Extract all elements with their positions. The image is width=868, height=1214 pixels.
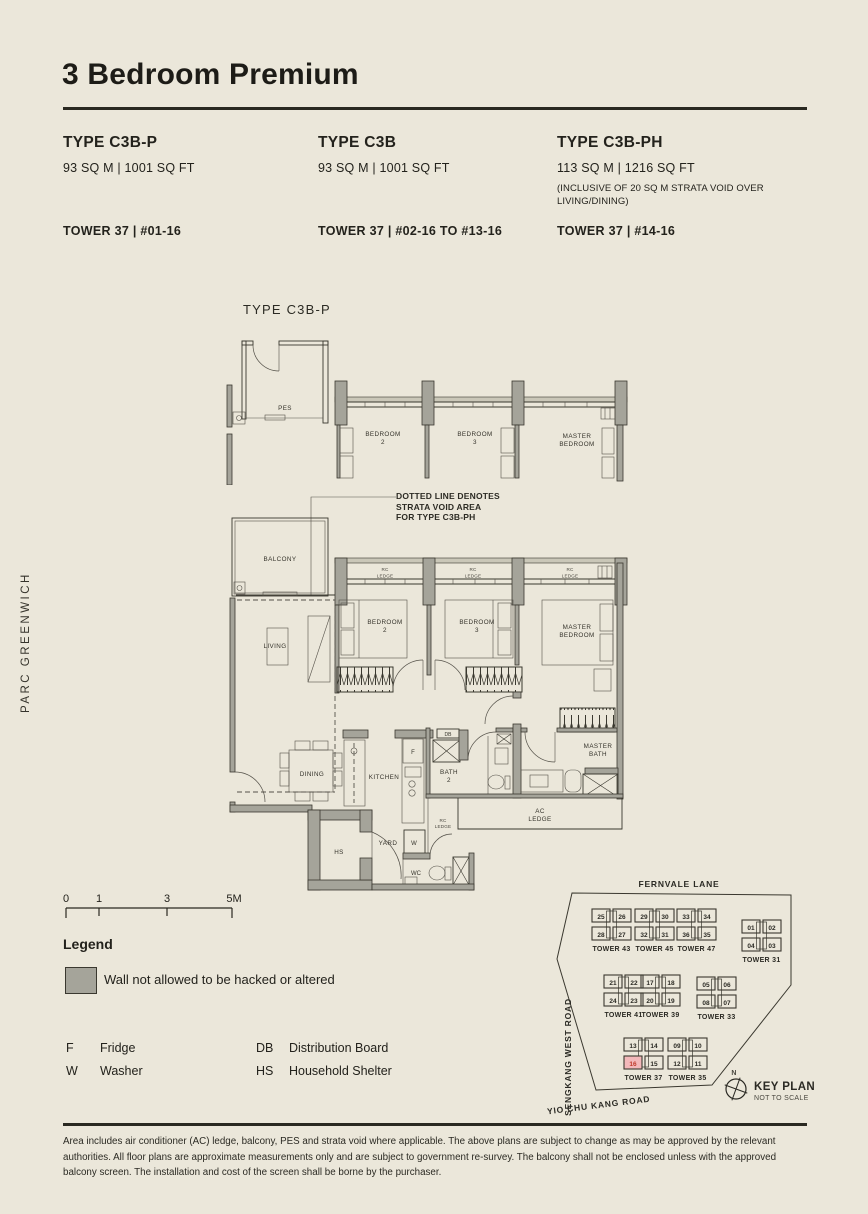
keyplan-unit-number: 24 <box>609 998 617 1005</box>
keyplan-unit-number: 22 <box>630 980 638 987</box>
rc-ledge-label-2: RC <box>469 567 477 572</box>
keyplan-unit-number: 03 <box>768 943 776 950</box>
master-bedroom-label: MASTER <box>563 624 592 631</box>
master-bath: MASTER BATH <box>521 732 618 797</box>
tower-cluster: 01020403TOWER 31 <box>742 920 781 964</box>
road-fernvale-lane: FERNVALE LANE <box>638 879 719 889</box>
living-dining: LIVING DINING <box>230 598 342 812</box>
living-label: LIVING <box>263 643 286 650</box>
tower-cluster: 21222423TOWER 41 <box>604 975 643 1019</box>
tower-cluster: 05060807TOWER 33 <box>697 977 736 1021</box>
keyplan-unit-number: 19 <box>667 998 675 1005</box>
keyplan-unit-number: 13 <box>629 1043 637 1050</box>
tower-cluster: 33343635TOWER 47 <box>677 909 716 953</box>
legend-heading: Legend <box>63 936 113 952</box>
rc-ledge-small-label: RC <box>439 818 447 823</box>
scale-1: 1 <box>96 893 102 905</box>
household-shelter: HS <box>308 810 401 890</box>
wall-legend-text: Wall not allowed to be hacked or altered <box>104 972 335 987</box>
tower-range-2: TOWER 37 | #02-16 TO #13-16 <box>318 224 502 238</box>
rc-ledge-label-1: RC <box>381 567 389 572</box>
type-area: 93 SQ M | 1001 SQ FT <box>318 161 553 175</box>
strip-bedrooms: BEDROOM 2 BEDROOM 3 MASTER BEDROOM <box>337 408 623 481</box>
keyplan-unit-number: 23 <box>630 998 638 1005</box>
tower-cluster-label: TOWER 31 <box>742 957 780 964</box>
ac-ledge-label2: LEDGE <box>528 816 551 823</box>
rc-ledge-label-3: RC <box>566 567 574 572</box>
tower-cluster-label: TOWER 35 <box>668 1075 706 1082</box>
floorplan-main: BALCONY RC LEDGE RC LEDGE RC <box>225 488 655 903</box>
rc-ledge-label-2b: LEDGE <box>465 574 482 579</box>
tower-cluster: 09101211TOWER 35 <box>668 1038 707 1082</box>
bedroom3-num: 3 <box>473 439 477 446</box>
abbr-hs: HS <box>256 1064 273 1078</box>
keyplan-unit-number: 34 <box>703 914 711 921</box>
keyplan-unit-number: 25 <box>597 914 605 921</box>
bedroom3-label: BEDROOM <box>457 431 492 438</box>
yard-wc: YARD W WC <box>372 830 474 890</box>
wall-legend-swatch <box>65 967 97 994</box>
keyplan-unit-number: 26 <box>618 914 626 921</box>
kitchen: F KITCHEN <box>343 730 433 823</box>
pes-label: PES <box>278 405 292 412</box>
bedroom-2: BEDROOM 2 <box>335 600 423 693</box>
yard-label: YARD <box>379 840 398 847</box>
keyplan-unit-number: 10 <box>694 1043 702 1050</box>
abbr-hs-label: Household Shelter <box>289 1064 392 1078</box>
keyplan-unit-number: 02 <box>768 925 776 932</box>
pes-room: PES <box>242 341 328 423</box>
tower-cluster: 17182019TOWER 39 <box>641 975 680 1019</box>
rc-ledge-label-1b: LEDGE <box>377 574 394 579</box>
keyplan-unit-number: 18 <box>667 980 675 987</box>
balcony-label: BALCONY <box>264 556 297 563</box>
tower-range-3: TOWER 37 | #14-16 <box>557 224 675 238</box>
hs-label: HS <box>334 849 344 856</box>
keyplan-unit-number: 36 <box>682 932 690 939</box>
tower-cluster: 29303231TOWER 45 <box>635 909 674 953</box>
type-name: TYPE C3B-P <box>63 134 298 152</box>
keyplan-unit-number: 06 <box>723 982 731 989</box>
keyplan-unit-number: 05 <box>702 982 710 989</box>
keyplan-unit-number: 31 <box>661 932 669 939</box>
abbr-f: F <box>66 1041 74 1055</box>
kitchen-label: KITCHEN <box>369 774 399 781</box>
page-title: 3 Bedroom Premium <box>62 58 359 92</box>
bedroom3-num: 3 <box>475 627 479 634</box>
bedroom2-label: BEDROOM <box>365 431 400 438</box>
master-bedroom-label: MASTER <box>563 433 592 440</box>
north-compass-icon: N <box>721 1070 752 1104</box>
keyplan-unit-number: 01 <box>747 925 755 932</box>
type-area: 93 SQ M | 1001 SQ FT <box>63 161 298 175</box>
fridge-label: F <box>411 750 415 756</box>
keyplan-unit-number: 07 <box>723 1000 731 1007</box>
bath2-num: 2 <box>447 777 451 784</box>
disclaimer-text: Area includes air conditioner (AC) ledge… <box>63 1134 809 1181</box>
key-plan-subtitle: NOT TO SCALE <box>754 1095 809 1102</box>
keyplan-unit-number: 12 <box>673 1061 681 1068</box>
plan-variant-label: TYPE C3B-P <box>243 302 331 317</box>
type-name: TYPE C3B-PH <box>557 134 792 152</box>
keyplan-unit-number: 09 <box>673 1043 681 1050</box>
unit-type-col-1: TYPE C3B-P 93 SQ M | 1001 SQ FT <box>63 134 298 175</box>
abbr-w-label: Washer <box>100 1064 143 1078</box>
keyplan-unit-number: 21 <box>609 980 617 987</box>
brochure-page: 3 Bedroom Premium TYPE C3B-P 93 SQ M | 1… <box>0 0 868 1214</box>
keyplan-unit-number: 27 <box>618 932 626 939</box>
master-bedroom-label2: BEDROOM <box>559 441 594 448</box>
bedroom-3: BEDROOM 3 <box>427 600 522 692</box>
dining-label: DINING <box>300 771 324 778</box>
master-bath-label2: BATH <box>589 751 607 758</box>
strata-void-dashed-line <box>237 600 335 792</box>
bath-2: DB BATH 2 <box>426 728 513 798</box>
floorplan-strip-c3bp: PES <box>225 328 655 485</box>
rc-ledge-label-3b: LEDGE <box>562 574 579 579</box>
project-name-vertical: PARC GREENWICH <box>20 572 32 713</box>
master-bedroom: MASTER BEDROOM <box>515 566 615 732</box>
keyplan-unit-number: 28 <box>597 932 605 939</box>
keyplan-unit-number: 17 <box>646 980 654 987</box>
footer-divider <box>63 1123 807 1126</box>
keyplan-unit-number: 14 <box>650 1043 658 1050</box>
tower-cluster-label: TOWER 45 <box>635 946 673 953</box>
tower-cluster-label: TOWER 39 <box>641 1012 679 1019</box>
scale-0: 0 <box>63 893 69 905</box>
type-area: 113 SQ M | 1216 SQ FT <box>557 161 792 175</box>
tower-cluster: 25262827TOWER 43 <box>592 909 631 953</box>
keyplan-unit-number: 08 <box>702 1000 710 1007</box>
type-note: (INCLUSIVE OF 20 SQ M STRATA VOID OVER L… <box>557 182 769 208</box>
master-bath-label: MASTER <box>584 743 613 750</box>
tower-cluster: 13141615TOWER 37 <box>624 1038 663 1082</box>
key-plan: FERNVALE LANE SENGKANG WEST ROAD YIO CHU… <box>544 872 866 1120</box>
keyplan-unit-number: 11 <box>695 1061 702 1068</box>
unit-type-col-2: TYPE C3B 93 SQ M | 1001 SQ FT <box>318 134 553 175</box>
tower-cluster-label: TOWER 33 <box>697 1014 735 1021</box>
tower-cluster-label: TOWER 47 <box>677 946 715 953</box>
rc-ledge-small-label2: LEDGE <box>435 824 452 829</box>
bedroom2-num: 2 <box>381 439 385 446</box>
keyplan-unit-number: 32 <box>640 932 648 939</box>
strip-window-band <box>335 381 627 425</box>
bath2-label: BATH <box>440 769 458 776</box>
road-sengkang-west: SENGKANG WEST ROAD <box>563 998 573 1116</box>
bedroom2-label: BEDROOM <box>367 619 402 626</box>
scale-3: 3 <box>164 893 170 905</box>
tower-cluster-label: TOWER 37 <box>624 1075 662 1082</box>
type-name: TYPE C3B <box>318 134 553 152</box>
keyplan-unit-number: 29 <box>640 914 648 921</box>
keyplan-unit-number: 30 <box>661 914 669 921</box>
scale-5m: 5M <box>226 893 241 905</box>
bedroom3-label: BEDROOM <box>459 619 494 626</box>
balcony: BALCONY <box>232 518 335 596</box>
keyplan-unit-number: 35 <box>703 932 711 939</box>
ac-ledge: AC LEDGE RC LEDGE <box>426 794 623 854</box>
keyplan-unit-number: 20 <box>646 998 654 1005</box>
title-divider <box>63 107 807 110</box>
north-label: N <box>731 1070 736 1077</box>
db-label: DB <box>445 732 453 738</box>
unit-type-col-3: TYPE C3B-PH 113 SQ M | 1216 SQ FT (INCLU… <box>557 134 792 208</box>
key-plan-title: KEY PLAN <box>754 1081 815 1093</box>
wc-label: WC <box>411 871 422 877</box>
scale-bar: 0 1 3 5M <box>58 886 268 924</box>
tower-range-1: TOWER 37 | #01-16 <box>63 224 181 238</box>
master-bedroom-label2: BEDROOM <box>559 632 594 639</box>
keyplan-unit-number: 16 <box>629 1061 637 1068</box>
tower-cluster-label: TOWER 43 <box>592 946 630 953</box>
washer-label: W <box>411 841 417 847</box>
void-note-leader <box>311 497 396 596</box>
keyplan-unit-number: 33 <box>682 914 690 921</box>
abbr-db: DB <box>256 1041 273 1055</box>
abbr-db-label: Distribution Board <box>289 1041 388 1055</box>
abbr-f-label: Fridge <box>100 1041 135 1055</box>
bedroom2-num: 2 <box>383 627 387 634</box>
keyplan-unit-number: 04 <box>747 943 755 950</box>
ac-ledge-label: AC <box>535 808 545 815</box>
tower-clusters: 25262827TOWER 4329303231TOWER 4533343635… <box>592 909 781 1082</box>
abbr-w: W <box>66 1064 78 1078</box>
tower-cluster-label: TOWER 41 <box>604 1012 642 1019</box>
keyplan-unit-number: 15 <box>650 1061 658 1068</box>
